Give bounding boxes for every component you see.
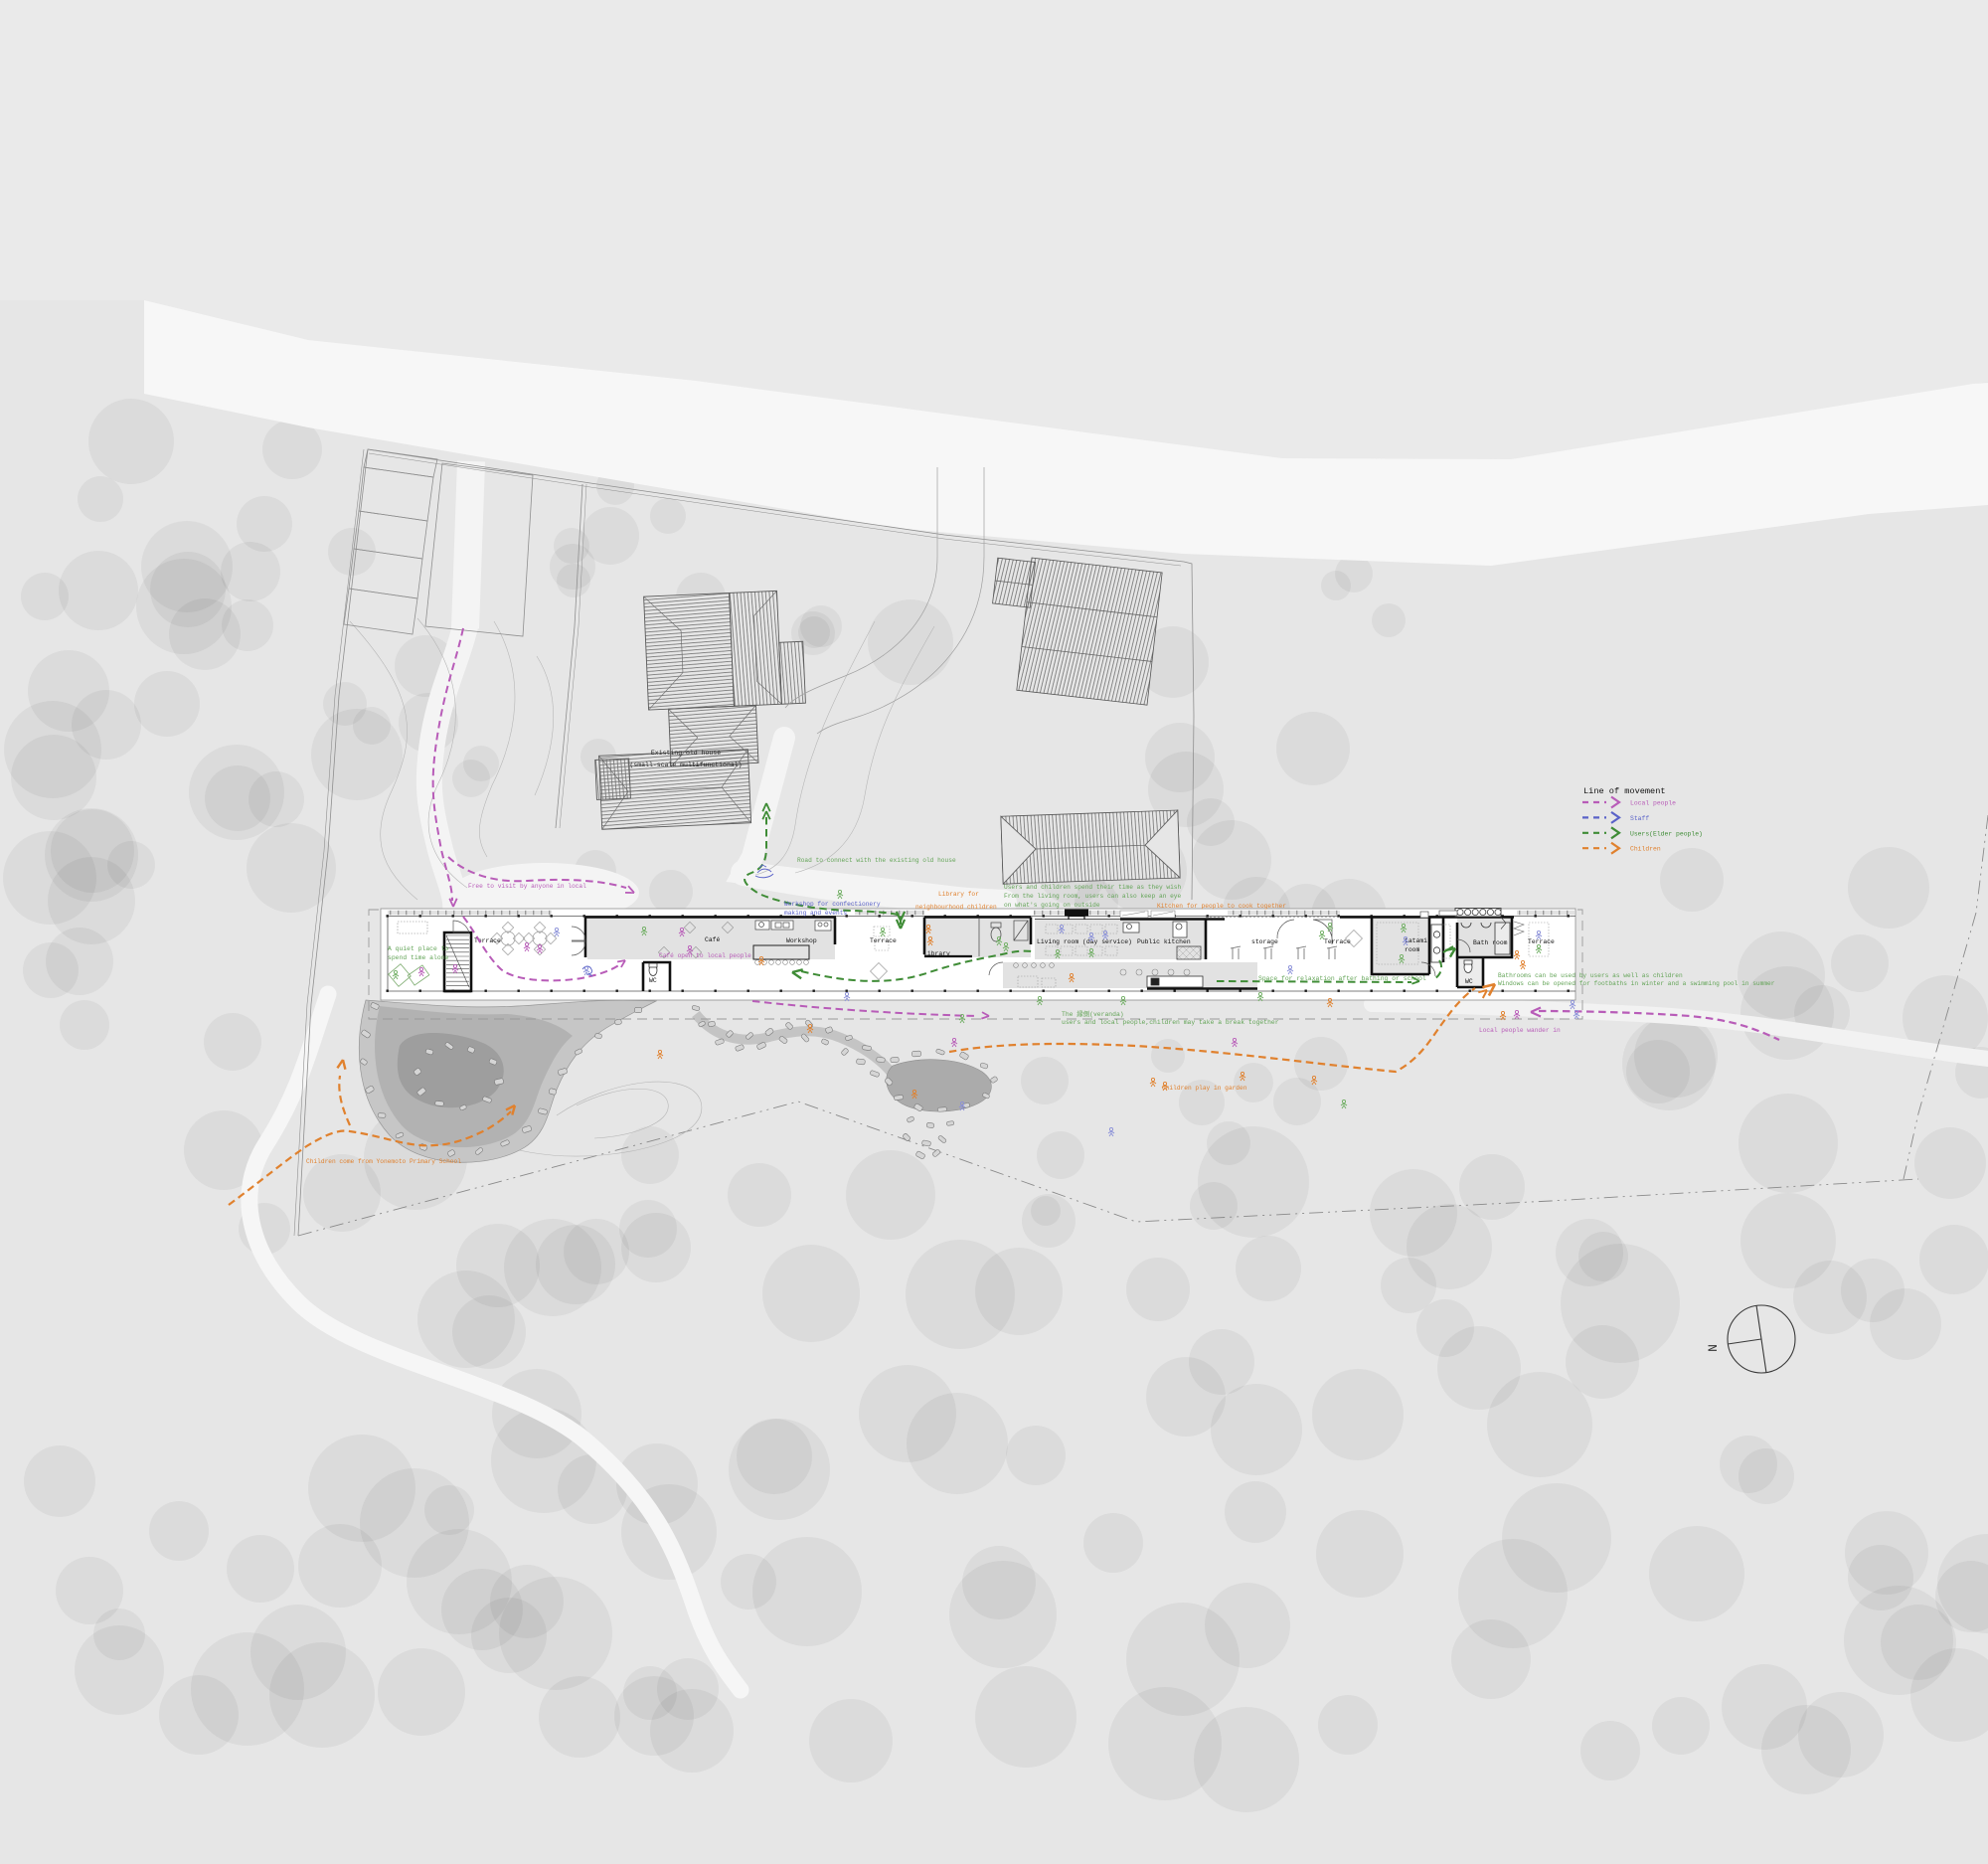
svg-text:WC: WC	[649, 977, 657, 984]
svg-text:Bath room: Bath room	[1473, 939, 1508, 946]
svg-text:Workshop for confectionery: Workshop for confectionery	[784, 901, 881, 908]
svg-text:Terrace: Terrace	[1528, 938, 1555, 945]
svg-text:Library for: Library for	[938, 891, 979, 898]
svg-text:From the living room, users ca: From the living room, users can also kee…	[1004, 893, 1182, 900]
svg-text:Children: Children	[1630, 846, 1661, 853]
svg-text:room: room	[1405, 946, 1420, 953]
svg-text:Free to visit by anyone in loc: Free to visit by anyone in local	[468, 883, 586, 890]
svg-text:Space for relaxation after bat: Space for relaxation after bathing or sc…	[1258, 975, 1426, 982]
svg-text:Existing old house: Existing old house	[651, 750, 721, 757]
svg-text:Staff: Staff	[1630, 815, 1649, 822]
svg-text:Children play in garden: Children play in garden	[1162, 1085, 1247, 1092]
svg-text:Café: Café	[705, 936, 721, 943]
svg-text:making and events: making and events	[784, 910, 847, 917]
svg-text:Workshop: Workshop	[786, 937, 817, 944]
svg-text:Café open to local people: Café open to local people	[659, 952, 751, 959]
svg-text:Living room (day service): Living room (day service)	[1037, 938, 1132, 945]
svg-text:Children come from Yonemoto Pr: Children come from Yonemoto Primary Scho…	[306, 1158, 461, 1165]
svg-text:Road to connect with the exist: Road to connect with the existing old ho…	[797, 857, 956, 864]
svg-text:Bathrooms can be used by users: Bathrooms can be used by users as well a…	[1498, 972, 1683, 979]
svg-text:Terrace: Terrace	[870, 937, 897, 944]
svg-text:on what's going on outside: on what's going on outside	[1004, 902, 1100, 909]
svg-text:neighbourhood children: neighbourhood children	[915, 904, 997, 911]
svg-text:(small-scale multifunctional): (small-scale multifunctional)	[629, 762, 742, 768]
svg-text:Users and children spend their: Users and children spend their time as t…	[1004, 884, 1182, 891]
svg-text:A quiet place to: A quiet place to	[388, 945, 449, 952]
svg-text:users and local people,childre: users and local people,children may take…	[1062, 1019, 1279, 1026]
svg-text:Windows can be opened for foot: Windows can be opened for footbaths in w…	[1498, 980, 1775, 987]
svg-text:The 縁側(veranda): The 縁側(veranda)	[1062, 1009, 1124, 1018]
svg-text:storage: storage	[1251, 938, 1278, 945]
svg-text:Library: Library	[923, 950, 950, 957]
svg-text:Line of movement: Line of movement	[1583, 786, 1666, 796]
svg-text:Local people wander in: Local people wander in	[1479, 1027, 1561, 1034]
svg-text:Local people: Local people	[1630, 800, 1676, 807]
svg-text:tatami: tatami	[1405, 937, 1427, 944]
svg-text:WC: WC	[1465, 978, 1473, 985]
svg-text:Terrace: Terrace	[1324, 938, 1351, 945]
svg-text:N: N	[1706, 1344, 1721, 1352]
svg-text:Kitchen for people to cook tog: Kitchen for people to cook together	[1157, 903, 1286, 910]
svg-text:Public kitchen: Public kitchen	[1137, 938, 1191, 945]
svg-text:spend time alone: spend time alone	[388, 954, 449, 961]
svg-text:Users(Elder people): Users(Elder people)	[1630, 830, 1703, 837]
